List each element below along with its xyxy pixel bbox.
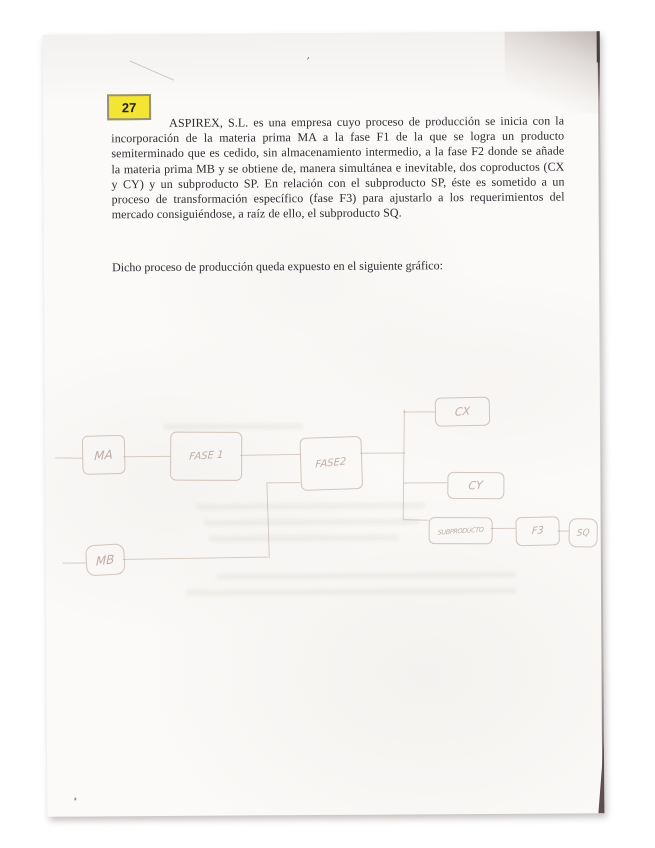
scan-corner-shade [505,31,600,114]
node-coproducto-cx: CX [435,397,491,427]
node-fase-3: F3 [515,516,560,546]
node-fase-1: FASE 1 [170,432,242,481]
flow-line-to-cy [403,482,447,483]
node-coproducto-cy: CY [447,472,504,499]
flow-line-into-mb [63,562,86,563]
node-label: F3 [531,525,544,537]
scan-canvas: ’ 27 ASPIREX, S.L. es una empresa cuyo p… [0,0,655,848]
flow-line-mb-into-fase2 [267,482,300,483]
node-label: FASE2 [316,456,347,470]
node-materia-prima-ma: MA [82,435,126,475]
node-label: CY [468,479,483,493]
diagram-caption: Dicho proceso de producción queda expues… [112,257,582,275]
flow-line-f3-sq [558,531,569,532]
ink-bleedthrough [216,572,516,580]
scan-crease [130,60,174,80]
flow-line-fase2-branch [360,453,405,454]
ink-bleedthrough [209,535,399,542]
scan-speck [74,798,76,801]
node-label: SUBPRODUCTO [437,525,483,536]
node-label: CX [455,404,471,418]
ink-bleedthrough [195,502,425,509]
flow-line-sp-f3 [491,528,516,529]
node-label: FASE 1 [189,450,224,463]
ink-bleedthrough [186,588,516,596]
page-edge-top-mark [597,31,600,62]
ink-bleedthrough [204,518,419,525]
stray-pen-mark: ’ [305,55,311,68]
flow-line-to-cx [403,411,435,412]
node-subproducto-sp: SUBPRODUCTO [429,517,493,544]
flow-line-into-ma [55,457,82,458]
node-label: SQ [576,528,590,539]
node-subproducto-sq: SQ [568,518,598,548]
scanned-page: ’ 27 ASPIREX, S.L. es una empresa cuyo p… [43,31,605,816]
flow-line-mb-horizontal [123,557,268,560]
question-paragraph: ASPIREX, S.L. es una empresa cuyo proces… [111,114,565,223]
flow-line-ma-fase1 [123,456,170,457]
node-fase-2: FASE2 [299,436,363,491]
node-label: MA [94,447,113,463]
node-label: MB [96,552,115,569]
ink-bleedthrough [163,423,303,430]
page-edge-line [598,31,605,813]
node-materia-prima-mb: MB [85,543,126,576]
flow-line-fase1-fase2 [240,454,300,456]
